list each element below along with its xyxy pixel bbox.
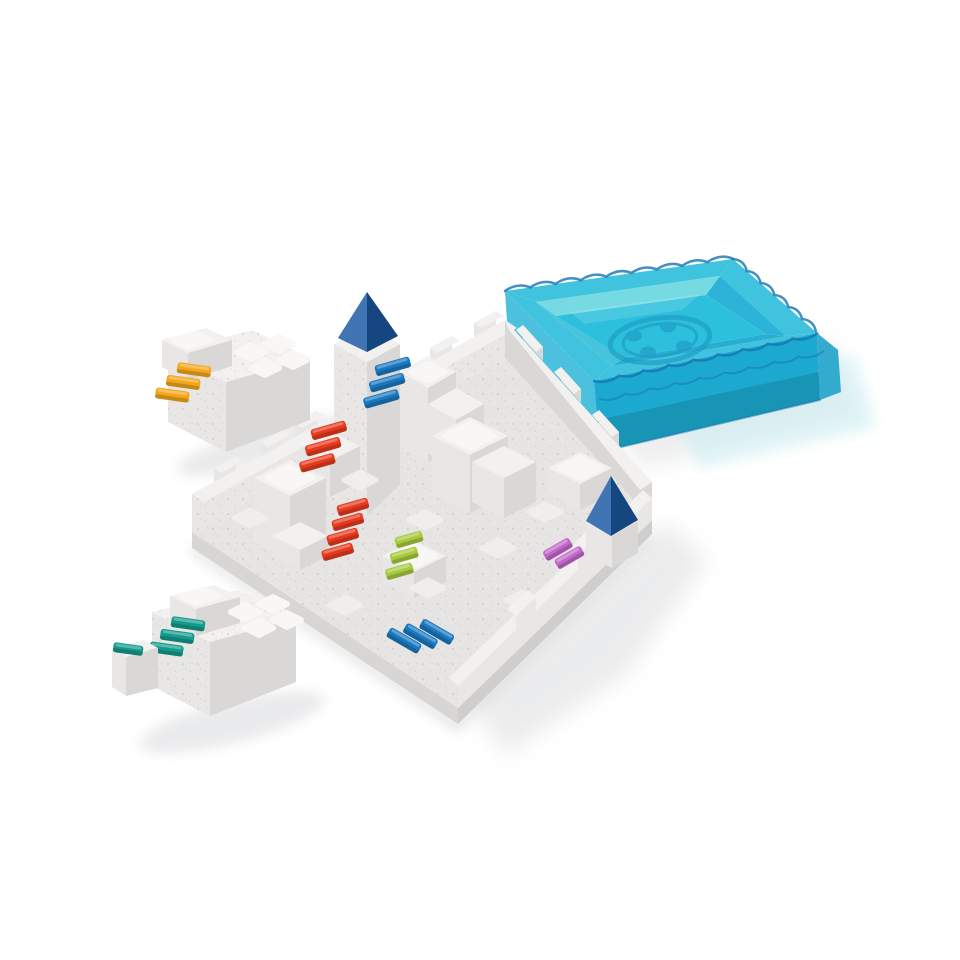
logo-dot xyxy=(660,322,676,333)
puzzle-game-photo xyxy=(0,0,960,960)
logo-dot xyxy=(626,331,642,342)
product-photo xyxy=(0,0,960,960)
teal-single-step xyxy=(112,640,158,696)
logo-dot xyxy=(676,341,692,352)
logo-dot xyxy=(640,347,656,358)
